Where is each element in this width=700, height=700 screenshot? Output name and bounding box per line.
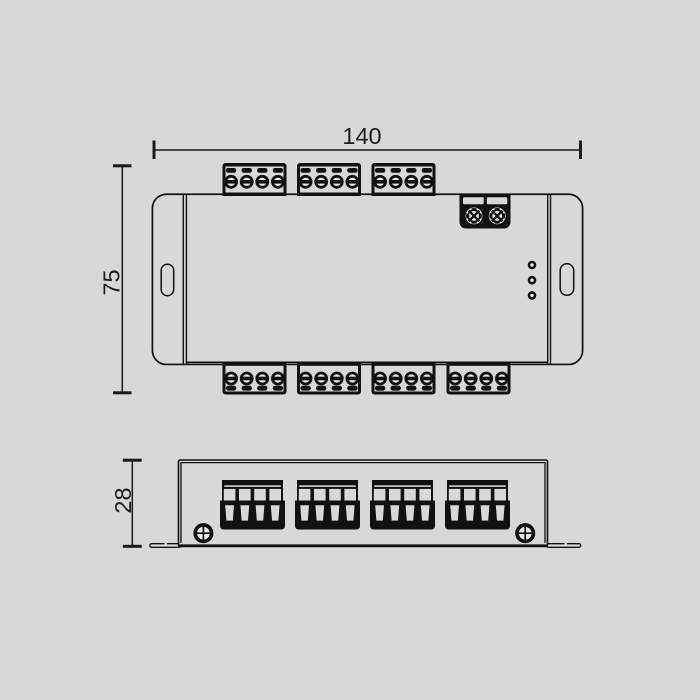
svg-text:140: 140	[342, 123, 381, 149]
svg-text:75: 75	[99, 269, 125, 295]
svg-text:28: 28	[110, 487, 136, 513]
